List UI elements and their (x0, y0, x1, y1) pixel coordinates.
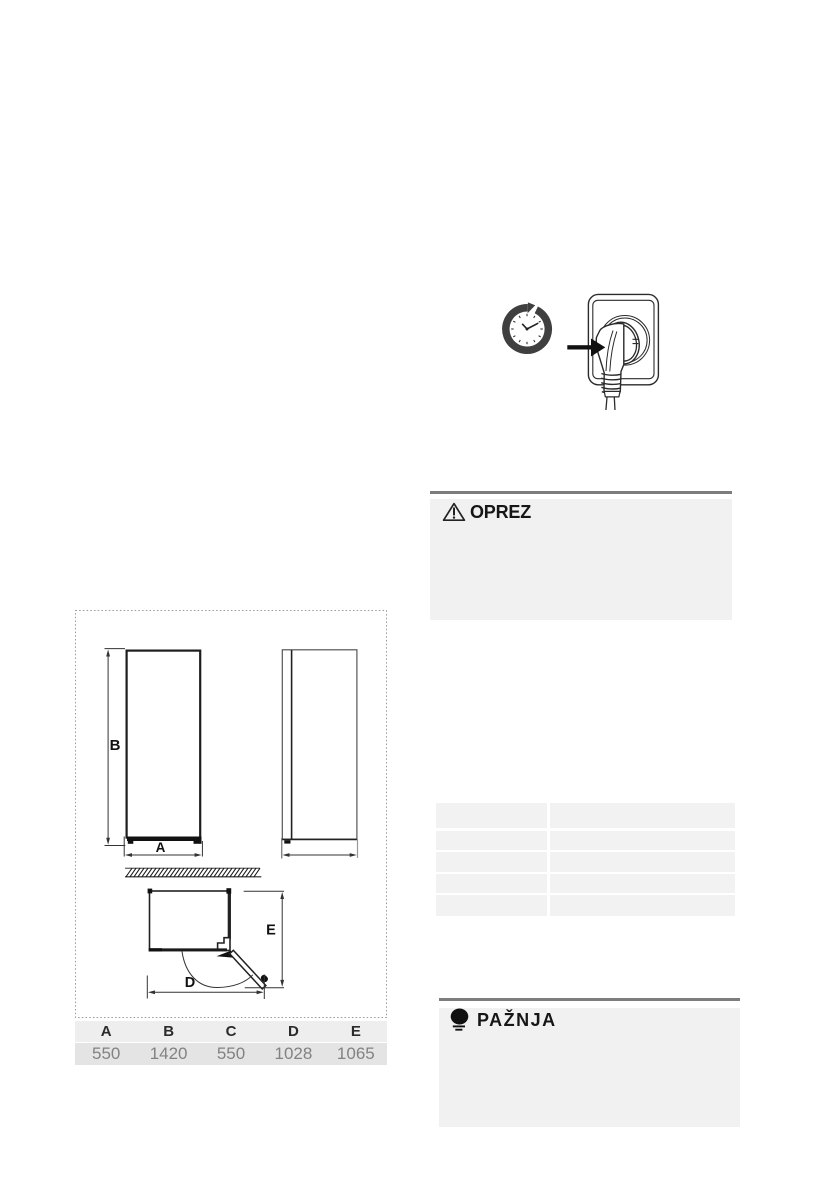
svg-text:D: D (185, 975, 195, 991)
svg-text:A: A (156, 840, 166, 855)
svg-text:B: B (110, 737, 121, 754)
svg-text:E: E (266, 923, 276, 939)
